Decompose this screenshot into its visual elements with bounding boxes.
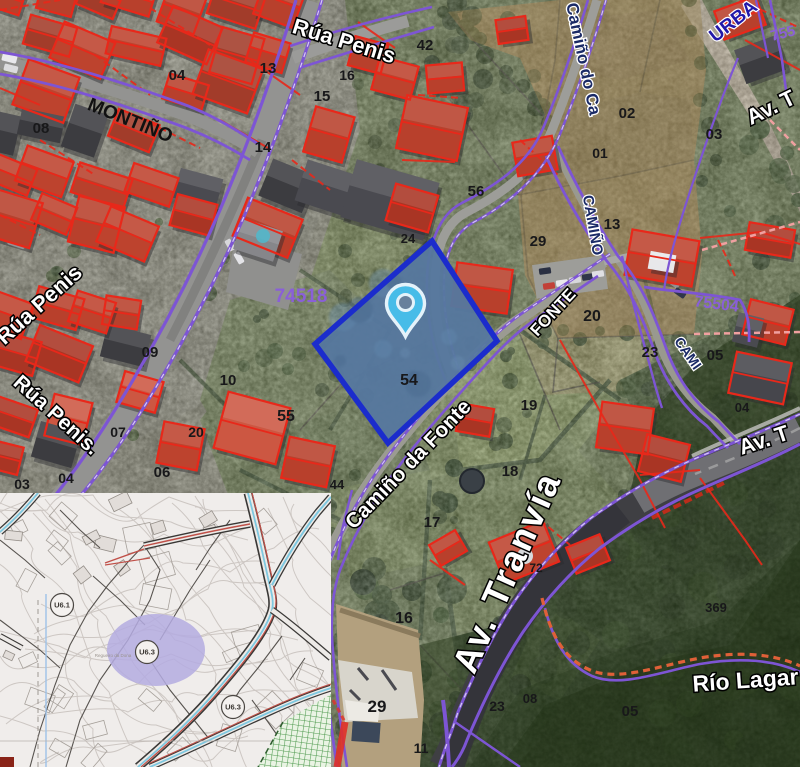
- svg-text:18: 18: [502, 463, 519, 480]
- svg-text:13: 13: [260, 60, 277, 77]
- svg-text:55: 55: [277, 408, 295, 425]
- svg-text:U6.3: U6.3: [225, 703, 241, 712]
- svg-text:Regueiro da Dona: Regueiro da Dona: [95, 653, 132, 658]
- svg-text:08: 08: [523, 691, 537, 706]
- svg-text:16: 16: [395, 610, 413, 627]
- svg-text:11: 11: [414, 740, 429, 756]
- svg-text:44: 44: [330, 477, 345, 492]
- svg-text:16: 16: [339, 67, 355, 83]
- svg-text:U6.1: U6.1: [54, 601, 70, 610]
- svg-text:23: 23: [489, 698, 505, 714]
- svg-text:13: 13: [604, 216, 621, 233]
- svg-text:04: 04: [169, 67, 186, 84]
- svg-text:20: 20: [188, 424, 204, 440]
- svg-text:74518: 74518: [275, 286, 328, 307]
- svg-text:04: 04: [58, 470, 74, 486]
- svg-text:15: 15: [314, 88, 331, 105]
- svg-text:03: 03: [706, 126, 723, 143]
- svg-text:05: 05: [622, 703, 639, 720]
- svg-text:02: 02: [619, 105, 636, 122]
- svg-text:09: 09: [142, 344, 159, 361]
- svg-text:19: 19: [521, 397, 538, 414]
- svg-text:29: 29: [530, 233, 547, 250]
- svg-text:20: 20: [583, 308, 601, 325]
- svg-text:17: 17: [424, 514, 441, 531]
- svg-text:369: 369: [705, 600, 727, 615]
- svg-text:07: 07: [110, 424, 126, 440]
- svg-text:08: 08: [33, 120, 50, 137]
- svg-text:56: 56: [468, 183, 485, 200]
- svg-text:05: 05: [707, 347, 724, 364]
- svg-text:U6.3: U6.3: [139, 648, 155, 657]
- svg-text:42: 42: [417, 37, 434, 54]
- svg-text:03: 03: [14, 476, 30, 492]
- svg-text:06: 06: [154, 464, 171, 481]
- svg-text:01: 01: [592, 145, 608, 161]
- svg-text:14: 14: [255, 139, 272, 156]
- svg-text:10: 10: [220, 372, 237, 389]
- svg-text:54: 54: [400, 372, 418, 389]
- svg-text:24: 24: [401, 231, 416, 246]
- svg-text:29: 29: [368, 697, 387, 716]
- svg-text:23: 23: [642, 344, 659, 361]
- svg-text:04: 04: [735, 400, 750, 415]
